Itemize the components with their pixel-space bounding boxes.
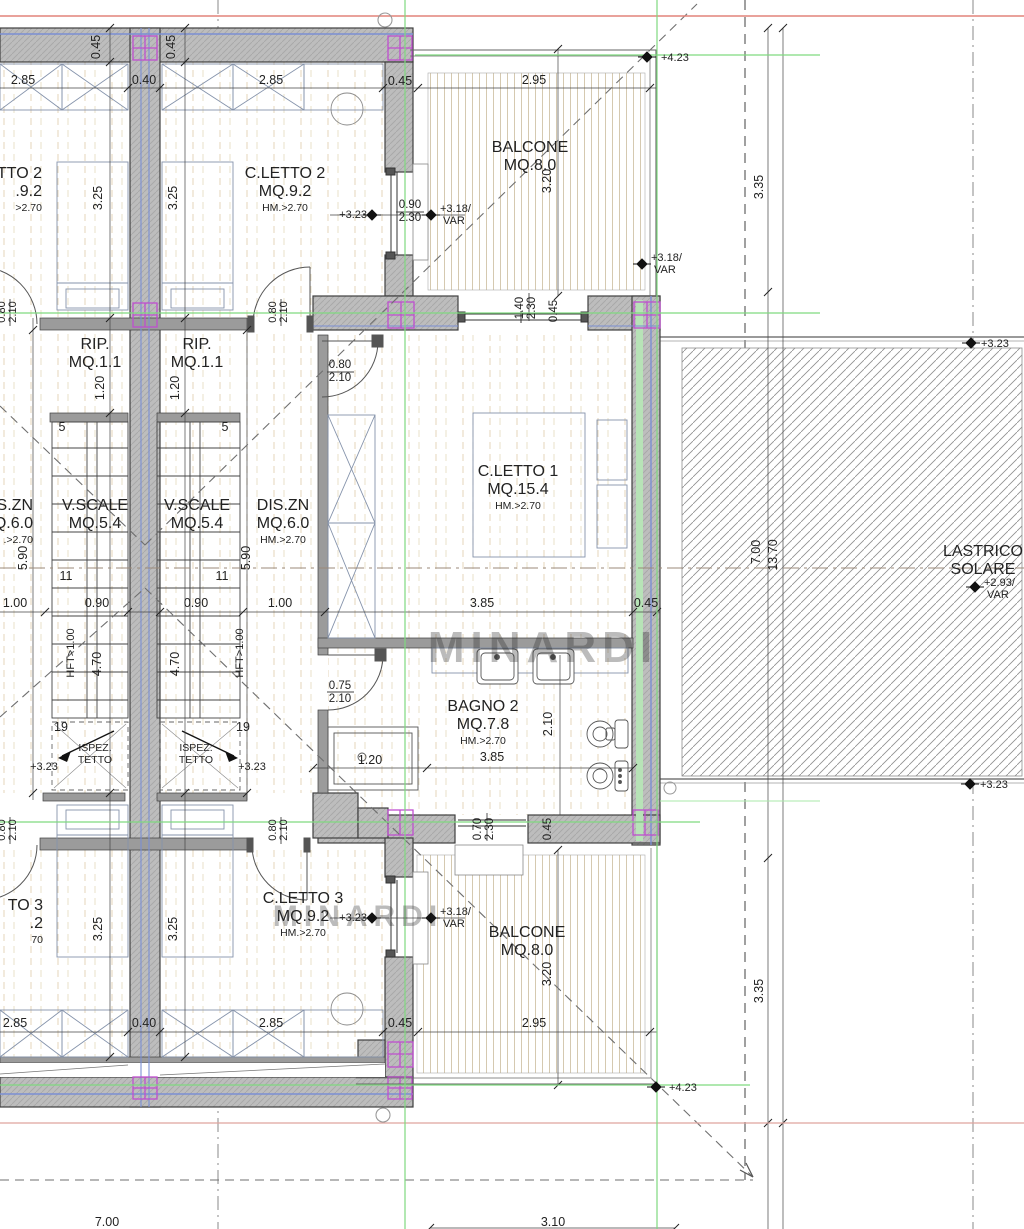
dim-1.20: 1.20 bbox=[93, 376, 107, 400]
wall-rip-north bbox=[40, 318, 248, 330]
dim-0.80: 0.80 bbox=[329, 359, 351, 371]
dim-2.10: 2.10 bbox=[7, 819, 19, 840]
room-label-cletto2-right: MQ.9.2 bbox=[259, 183, 312, 200]
dim-3.25: 3.25 bbox=[166, 186, 180, 210]
floor-plan-page: C.LETTO 2MQ.9.2HM.>2.70TTO 2.9.2>2.70BAL… bbox=[0, 0, 1024, 1229]
level-marker-symbol bbox=[961, 779, 979, 789]
floor-plan-drawing: C.LETTO 2MQ.9.2HM.>2.70TTO 2.9.2>2.70BAL… bbox=[0, 0, 1024, 1229]
dim-2.10: 2.10 bbox=[329, 693, 351, 705]
wall-slit-bottom bbox=[0, 1063, 385, 1077]
room-label-diszn-right: DIS.ZN bbox=[257, 497, 309, 514]
dim-0.90: 0.90 bbox=[399, 199, 421, 211]
room-label-ispez-tetto-right: TETTO bbox=[179, 754, 213, 766]
dim-3.25: 3.25 bbox=[166, 917, 180, 941]
dim-7.00: 7.00 bbox=[749, 540, 763, 564]
level-+3.23: +3.23 bbox=[30, 761, 58, 773]
dim-5: 5 bbox=[222, 420, 229, 434]
dim-2.10: 2.10 bbox=[278, 819, 290, 840]
room-label-cletto2-right: C.LETTO 2 bbox=[245, 165, 326, 182]
level-+3.18/: +3.18/ bbox=[440, 906, 472, 918]
dim-5.90: 5.90 bbox=[16, 546, 30, 570]
dim-2.30: 2.30 bbox=[399, 212, 421, 224]
level-+3.23: +3.23 bbox=[339, 209, 367, 221]
room-label-bagno2: HM.>2.70 bbox=[460, 735, 506, 747]
dim-11: 11 bbox=[60, 569, 73, 583]
dim-2.85: 2.85 bbox=[3, 1016, 27, 1030]
dim-5: 5 bbox=[59, 420, 66, 434]
dim-5.90: 5.90 bbox=[239, 546, 253, 570]
room-label-rip-left: RIP. bbox=[80, 336, 109, 353]
dim-3.25: 3.25 bbox=[91, 186, 105, 210]
room-label-bagno2: BAGNO 2 bbox=[447, 698, 518, 715]
room-label-vscale-right: MQ.5.4 bbox=[171, 515, 224, 532]
dim-1.00: 1.00 bbox=[3, 596, 27, 610]
room-label-balcone-bottom: BALCONE bbox=[489, 924, 565, 941]
wall-top bbox=[0, 28, 413, 62]
dim-3.20: 3.20 bbox=[540, 962, 554, 986]
level-+4.23: +4.23 bbox=[661, 52, 689, 64]
dim-0.45: 0.45 bbox=[548, 300, 560, 322]
dim-2.85: 2.85 bbox=[259, 73, 283, 87]
room-label-ispez-tetto-left: ISPEZ. bbox=[78, 742, 111, 754]
level-VAR: VAR bbox=[654, 264, 676, 276]
dim-1.20: 1.20 bbox=[358, 753, 382, 767]
room-label-lastrico-solare: LASTRICO bbox=[943, 543, 1023, 560]
room-label-ispez-tetto-right: ISPEZ. bbox=[179, 742, 212, 754]
dim-0.45: 0.45 bbox=[89, 35, 103, 59]
room-label-vscale-right: V.SCALE bbox=[164, 497, 230, 514]
room-label-diszn-left-cut: .>2.70 bbox=[4, 534, 34, 546]
dim-11: 11 bbox=[216, 569, 229, 583]
dim-13.70: 13.70 bbox=[766, 539, 780, 570]
room-label-cletto1: C.LETTO 1 bbox=[478, 463, 559, 480]
dim-3.35: 3.35 bbox=[752, 175, 766, 199]
room-label-balcone-top: BALCONE bbox=[492, 139, 568, 156]
dim-0.45: 0.45 bbox=[164, 35, 178, 59]
room-label-balcone-bottom: MQ.8.0 bbox=[501, 942, 554, 959]
level-VAR: VAR bbox=[987, 589, 1009, 601]
dim-7.00: 7.00 bbox=[95, 1215, 119, 1229]
dim-2.95: 2.95 bbox=[522, 73, 546, 87]
dim-0.45: 0.45 bbox=[388, 1016, 412, 1030]
room-label-cletto1: MQ.15.4 bbox=[487, 481, 548, 498]
balcony-top-deck bbox=[428, 73, 645, 290]
reference-circle-bottom bbox=[376, 1108, 390, 1122]
dim-HFT>1.00: HFT>1.00 bbox=[65, 628, 77, 677]
dim-1.20: 1.20 bbox=[168, 376, 182, 400]
dim-HFT>1.00: HFT>1.00 bbox=[234, 628, 246, 677]
watermark-text: MINARDI bbox=[273, 900, 443, 933]
dim-3.85: 3.85 bbox=[480, 750, 504, 764]
wall-corner-bagno-sw bbox=[313, 793, 358, 838]
room-label-cletto2-left-cut: TTO 2 bbox=[0, 165, 42, 182]
dim-3.10: 3.10 bbox=[541, 1215, 565, 1229]
reference-circle-top bbox=[378, 13, 392, 27]
wall-west-bed1 bbox=[318, 335, 328, 655]
balcony-bottom-deck bbox=[417, 855, 645, 1073]
level-VAR: VAR bbox=[443, 215, 465, 227]
dim-3.25: 3.25 bbox=[91, 917, 105, 941]
room-label-cletto3-left-cut: TO 3 bbox=[8, 897, 43, 914]
room-label-vscale-left: MQ.5.4 bbox=[69, 515, 122, 532]
dim-3.20: 3.20 bbox=[540, 169, 554, 193]
level-VAR: VAR bbox=[443, 918, 465, 930]
room-label-rip-right: RIP. bbox=[182, 336, 211, 353]
green-liner-east-wall bbox=[636, 300, 643, 841]
dim-0.40: 0.40 bbox=[132, 73, 156, 87]
dim-0.45: 0.45 bbox=[542, 818, 554, 840]
dim-2.10: 2.10 bbox=[7, 301, 19, 322]
room-label-cletto2-right: HM.>2.70 bbox=[262, 202, 308, 214]
dim-3.85: 3.85 bbox=[470, 596, 494, 610]
wall-east-bed2-lower bbox=[385, 255, 413, 296]
dim-0.90: 0.90 bbox=[184, 596, 208, 610]
dim-4.70: 4.70 bbox=[168, 652, 182, 676]
dim-0.70: 0.70 bbox=[472, 818, 484, 840]
wall-bed3-north bbox=[40, 838, 248, 850]
reference-circle bbox=[664, 782, 676, 794]
dim-2.10: 2.10 bbox=[329, 372, 351, 384]
room-label-cletto3-left-cut: 70 bbox=[31, 934, 43, 946]
dim-0.90: 0.90 bbox=[85, 596, 109, 610]
room-label-ispez-tetto-left: TETTO bbox=[78, 754, 112, 766]
dim-2.30: 2.30 bbox=[526, 297, 538, 319]
dim-19: 19 bbox=[54, 720, 68, 734]
room-label-bagno2: MQ.7.8 bbox=[457, 716, 510, 733]
level-+3.23: +3.23 bbox=[981, 338, 1009, 350]
dim-0.45: 0.45 bbox=[634, 596, 658, 610]
level-+4.23: +4.23 bbox=[669, 1082, 697, 1094]
room-label-cletto3-left-cut: .2 bbox=[30, 915, 43, 932]
dim-2.30: 2.30 bbox=[484, 818, 496, 840]
dim-1.40: 1.40 bbox=[514, 297, 526, 319]
dim-4.70: 4.70 bbox=[90, 652, 104, 676]
level-+3.23: +3.23 bbox=[980, 779, 1008, 791]
dim-2.85: 2.85 bbox=[11, 73, 35, 87]
level-+2.93/: +2.93/ bbox=[984, 577, 1016, 589]
dim-0.40: 0.40 bbox=[132, 1016, 156, 1030]
level-marker-symbol bbox=[962, 338, 980, 348]
dim-0.75: 0.75 bbox=[329, 680, 351, 692]
dim-2.85: 2.85 bbox=[259, 1016, 283, 1030]
room-label-diszn-left-cut: S.ZN bbox=[0, 497, 33, 514]
dim-1.00: 1.00 bbox=[268, 596, 292, 610]
room-label-cletto2-left-cut: .9.2 bbox=[15, 183, 42, 200]
room-label-vscale-left: V.SCALE bbox=[62, 497, 128, 514]
room-label-rip-left: MQ.1.1 bbox=[69, 354, 122, 371]
dim-2.10: 2.10 bbox=[541, 712, 555, 736]
wall-bottom bbox=[0, 1077, 413, 1107]
room-label-diszn-right: MQ.6.0 bbox=[257, 515, 310, 532]
room-label-diszn-right: HM.>2.70 bbox=[260, 534, 306, 546]
dim-2.95: 2.95 bbox=[522, 1016, 546, 1030]
room-label-lastrico-solare: SOLARE bbox=[951, 561, 1016, 578]
wall-corner-bagno-sw2 bbox=[358, 808, 388, 838]
room-label-diszn-left-cut: Q.6.0 bbox=[0, 515, 33, 532]
room-label-cletto1: HM.>2.70 bbox=[495, 500, 541, 512]
wall-party bbox=[130, 28, 160, 1107]
level-+3.18/: +3.18/ bbox=[440, 203, 472, 215]
dim-3.35: 3.35 bbox=[752, 979, 766, 1003]
bidet bbox=[587, 761, 628, 791]
dim-2.10: 2.10 bbox=[278, 301, 290, 322]
dim-0.45: 0.45 bbox=[388, 74, 412, 88]
level-+3.18/: +3.18/ bbox=[651, 252, 683, 264]
dim-19: 19 bbox=[236, 720, 250, 734]
toilet bbox=[587, 720, 628, 748]
level-+3.23: +3.23 bbox=[238, 761, 266, 773]
watermark-text: MINARDI bbox=[428, 623, 658, 672]
room-label-rip-right: MQ.1.1 bbox=[171, 354, 224, 371]
room-label-cletto2-left-cut: >2.70 bbox=[15, 202, 42, 214]
